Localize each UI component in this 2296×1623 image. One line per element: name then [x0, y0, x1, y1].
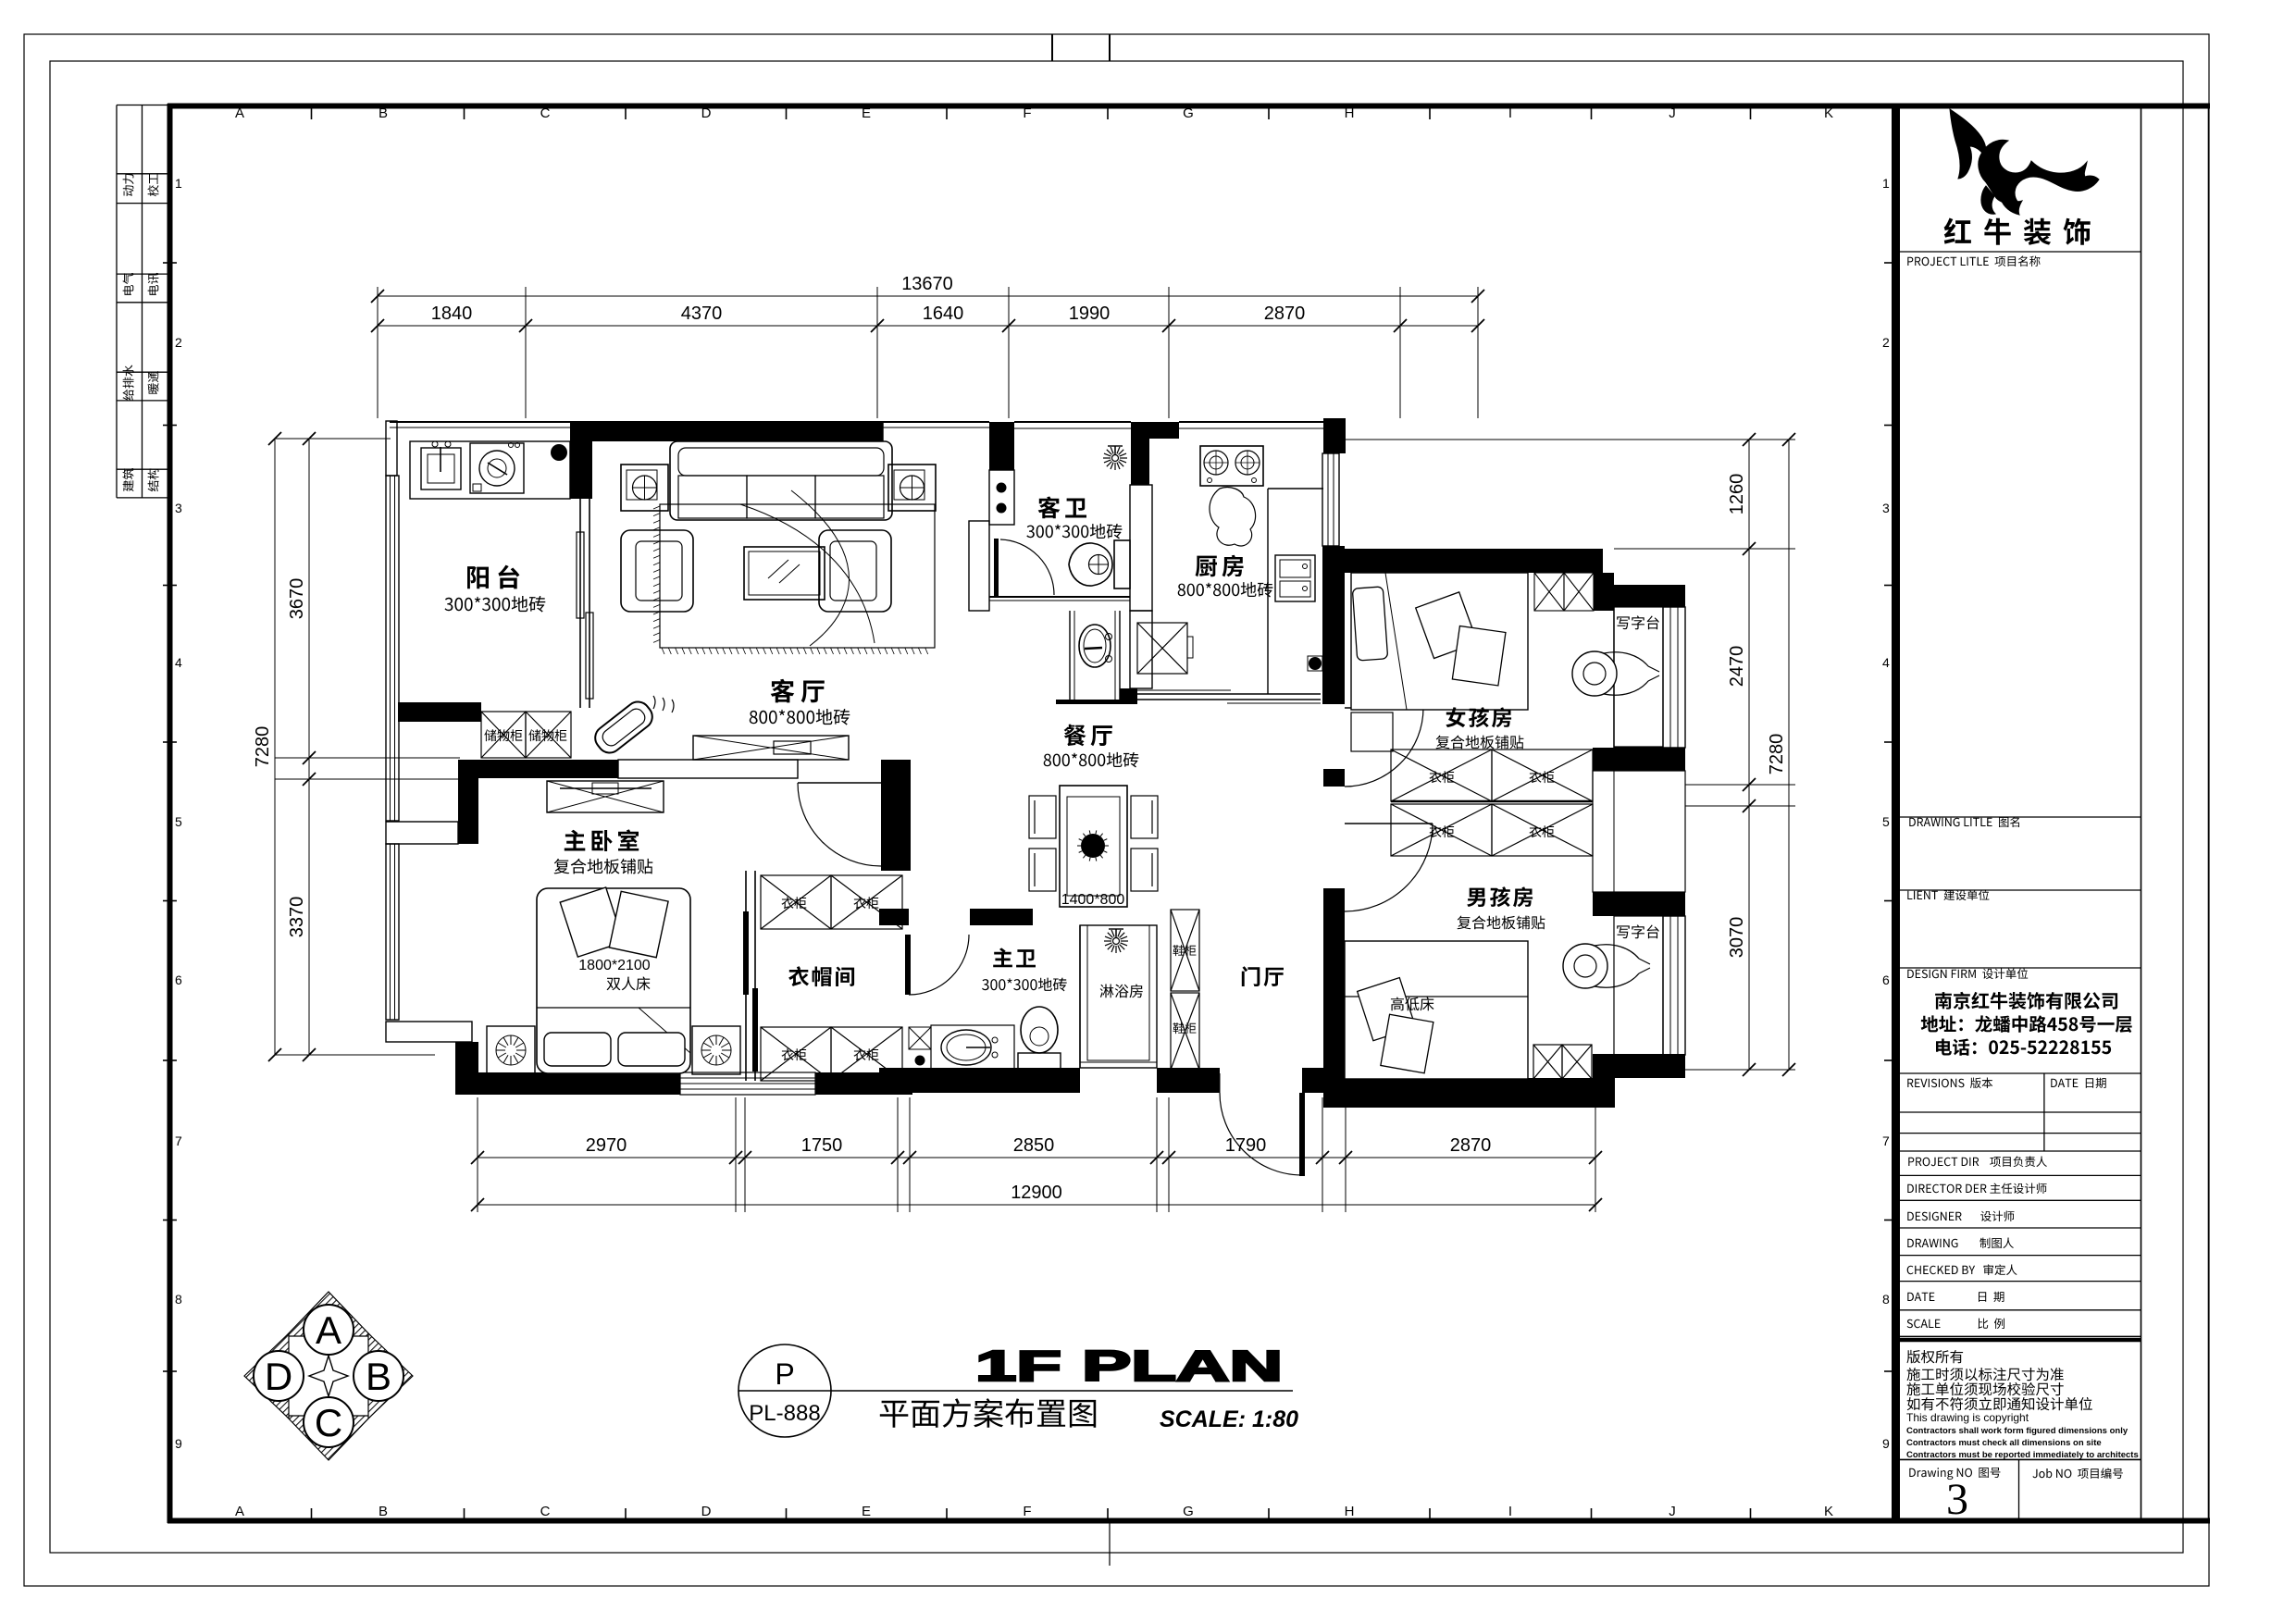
svg-text:G: G [1183, 105, 1194, 121]
svg-text:7280: 7280 [1767, 734, 1787, 775]
svg-text:J: J [1669, 105, 1676, 121]
svg-text:1260: 1260 [1727, 474, 1747, 515]
svg-text:I: I [1508, 1504, 1512, 1519]
svg-text:K: K [1824, 105, 1833, 121]
svg-text:1F PLAN: 1F PLAN [975, 1342, 1283, 1390]
svg-text:B: B [379, 1504, 388, 1519]
svg-text:F: F [1023, 1504, 1031, 1519]
svg-text:1640: 1640 [923, 304, 964, 324]
svg-text:1: 1 [1882, 176, 1890, 191]
svg-text:3070: 3070 [1727, 917, 1747, 959]
svg-text:3670: 3670 [287, 578, 307, 620]
svg-text:2970: 2970 [586, 1135, 627, 1156]
svg-text:1400*800: 1400*800 [1061, 892, 1125, 908]
svg-text:3: 3 [175, 501, 182, 515]
svg-text:Contractors must be reported i: Contractors must be reported immediately… [1906, 1450, 2139, 1460]
svg-text:1990: 1990 [1069, 304, 1111, 324]
svg-text:P: P [775, 1357, 794, 1391]
svg-text:I: I [1508, 105, 1512, 121]
svg-text:D: D [701, 1504, 712, 1519]
svg-text:9: 9 [175, 1436, 182, 1451]
svg-text:2470: 2470 [1727, 646, 1747, 688]
svg-text:This drawing is copyright: This drawing is copyright [1906, 1411, 2029, 1424]
svg-text:8: 8 [175, 1292, 182, 1307]
svg-text:H: H [1345, 105, 1355, 121]
svg-text:C: C [315, 1401, 342, 1444]
svg-text:4: 4 [175, 655, 182, 670]
svg-text:5: 5 [175, 814, 182, 829]
svg-text:A: A [235, 105, 244, 121]
svg-text:7: 7 [175, 1134, 182, 1148]
svg-text:Contractors shall work form fi: Contractors shall work form figured dime… [1906, 1426, 2128, 1436]
svg-text:5: 5 [1882, 814, 1890, 829]
svg-text:4: 4 [1882, 655, 1890, 670]
svg-text:J: J [1669, 1504, 1676, 1519]
svg-text:E: E [862, 105, 871, 121]
svg-text:F: F [1023, 105, 1031, 121]
svg-text:2: 2 [1882, 335, 1890, 350]
svg-text:SCALE: 1:80: SCALE: 1:80 [1160, 1406, 1298, 1432]
svg-text:B: B [379, 105, 388, 121]
svg-text:C: C [540, 105, 551, 121]
svg-text:1840: 1840 [431, 304, 473, 324]
svg-text:Contractors must check all dim: Contractors must check all dimensions on… [1906, 1438, 2102, 1448]
svg-text:12900: 12900 [1011, 1183, 1062, 1203]
svg-text:E: E [862, 1504, 871, 1519]
svg-text:3: 3 [1946, 1475, 1968, 1524]
svg-text:1800*2100: 1800*2100 [578, 958, 651, 973]
svg-text:4370: 4370 [681, 304, 723, 324]
svg-text:1750: 1750 [801, 1135, 843, 1156]
svg-text:3: 3 [1882, 501, 1890, 515]
svg-text:K: K [1824, 1504, 1833, 1519]
svg-text:13670: 13670 [901, 274, 953, 294]
svg-text:8: 8 [1882, 1292, 1890, 1307]
svg-text:2850: 2850 [1013, 1135, 1055, 1156]
svg-text:6: 6 [175, 973, 182, 987]
svg-text:A: A [235, 1504, 244, 1519]
svg-text:3370: 3370 [287, 897, 307, 938]
svg-text:1: 1 [175, 176, 182, 191]
svg-text:PL-888: PL-888 [749, 1401, 820, 1426]
svg-text:7: 7 [1882, 1134, 1890, 1148]
svg-text:D: D [701, 105, 712, 121]
svg-text:H: H [1345, 1504, 1355, 1519]
svg-text:D: D [265, 1355, 292, 1398]
svg-text:B: B [366, 1355, 391, 1398]
svg-text:C: C [540, 1504, 551, 1519]
svg-text:2: 2 [175, 335, 182, 350]
svg-text:G: G [1183, 1504, 1194, 1519]
svg-text:9: 9 [1882, 1436, 1890, 1451]
svg-text:7280: 7280 [253, 726, 273, 768]
svg-text:6: 6 [1882, 973, 1890, 987]
svg-text:A: A [316, 1308, 341, 1352]
svg-text:2870: 2870 [1264, 304, 1306, 324]
svg-text:2870: 2870 [1450, 1135, 1492, 1156]
